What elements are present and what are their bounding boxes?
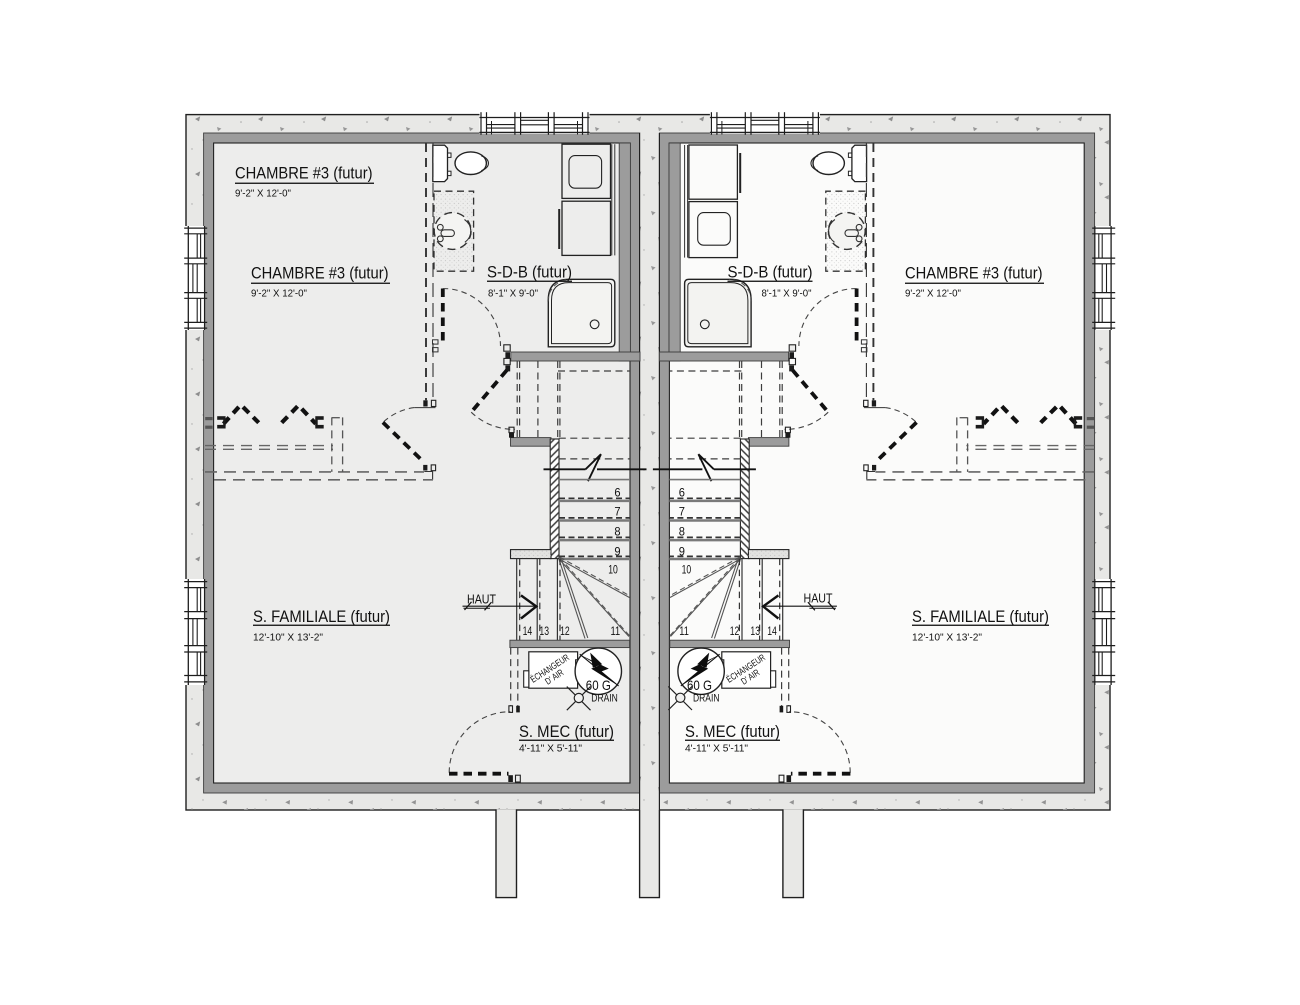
svg-text:8'-1" X 9'-0": 8'-1" X 9'-0" [762,288,812,300]
svg-text:CHAMBRE #3 (futur): CHAMBRE #3 (futur) [251,264,389,283]
svg-text:9: 9 [679,544,685,558]
svg-text:12'-10" X 13'-2": 12'-10" X 13'-2" [253,632,323,644]
svg-text:8: 8 [679,525,685,539]
svg-text:6: 6 [614,486,620,500]
svg-text:12'-10" X 13'-2": 12'-10" X 13'-2" [912,632,982,644]
svg-text:11: 11 [679,624,689,638]
svg-text:9: 9 [614,544,620,558]
svg-text:4'-11" X 5'-11": 4'-11" X 5'-11" [685,743,748,755]
svg-text:8'-1" X 9'-0": 8'-1" X 9'-0" [488,288,538,300]
svg-text:S-D-B (futur): S-D-B (futur) [728,263,813,282]
svg-text:6: 6 [679,486,685,500]
svg-text:HAUT: HAUT [804,592,833,606]
svg-text:4'-11" X 5'-11": 4'-11" X 5'-11" [519,743,582,755]
svg-text:14: 14 [523,624,533,638]
svg-text:9'-2" X 12'-0": 9'-2" X 12'-0" [251,288,307,300]
svg-text:7: 7 [679,505,685,519]
svg-text:DRAIN: DRAIN [693,693,720,705]
svg-text:12: 12 [730,624,740,638]
svg-text:13: 13 [750,624,760,638]
svg-text:7: 7 [614,505,620,519]
svg-text:CHAMBRE #3 (futur): CHAMBRE #3 (futur) [235,164,373,183]
svg-text:9'-2" X 12'-0": 9'-2" X 12'-0" [235,188,291,200]
svg-text:13: 13 [539,624,549,638]
svg-text:12: 12 [560,624,570,638]
svg-text:CHAMBRE #3 (futur): CHAMBRE #3 (futur) [905,264,1043,283]
svg-text:10: 10 [682,563,692,577]
svg-text:S. MEC (futur): S. MEC (futur) [519,722,614,741]
svg-text:DRAIN: DRAIN [591,693,618,705]
svg-text:11: 11 [611,624,621,638]
svg-text:S. FAMILIALE (futur): S. FAMILIALE (futur) [253,607,390,626]
svg-text:S. FAMILIALE (futur): S. FAMILIALE (futur) [912,607,1049,626]
svg-text:60 G: 60 G [586,677,611,693]
svg-text:9'-2" X 12'-0": 9'-2" X 12'-0" [905,288,961,300]
svg-text:HAUT: HAUT [467,593,496,607]
svg-text:S. MEC (futur): S. MEC (futur) [685,722,780,741]
svg-text:10: 10 [608,563,618,577]
svg-text:S-D-B (futur): S-D-B (futur) [487,263,572,282]
svg-text:14: 14 [767,624,777,638]
svg-text:8: 8 [614,525,620,539]
svg-text:60 G: 60 G [687,677,712,693]
